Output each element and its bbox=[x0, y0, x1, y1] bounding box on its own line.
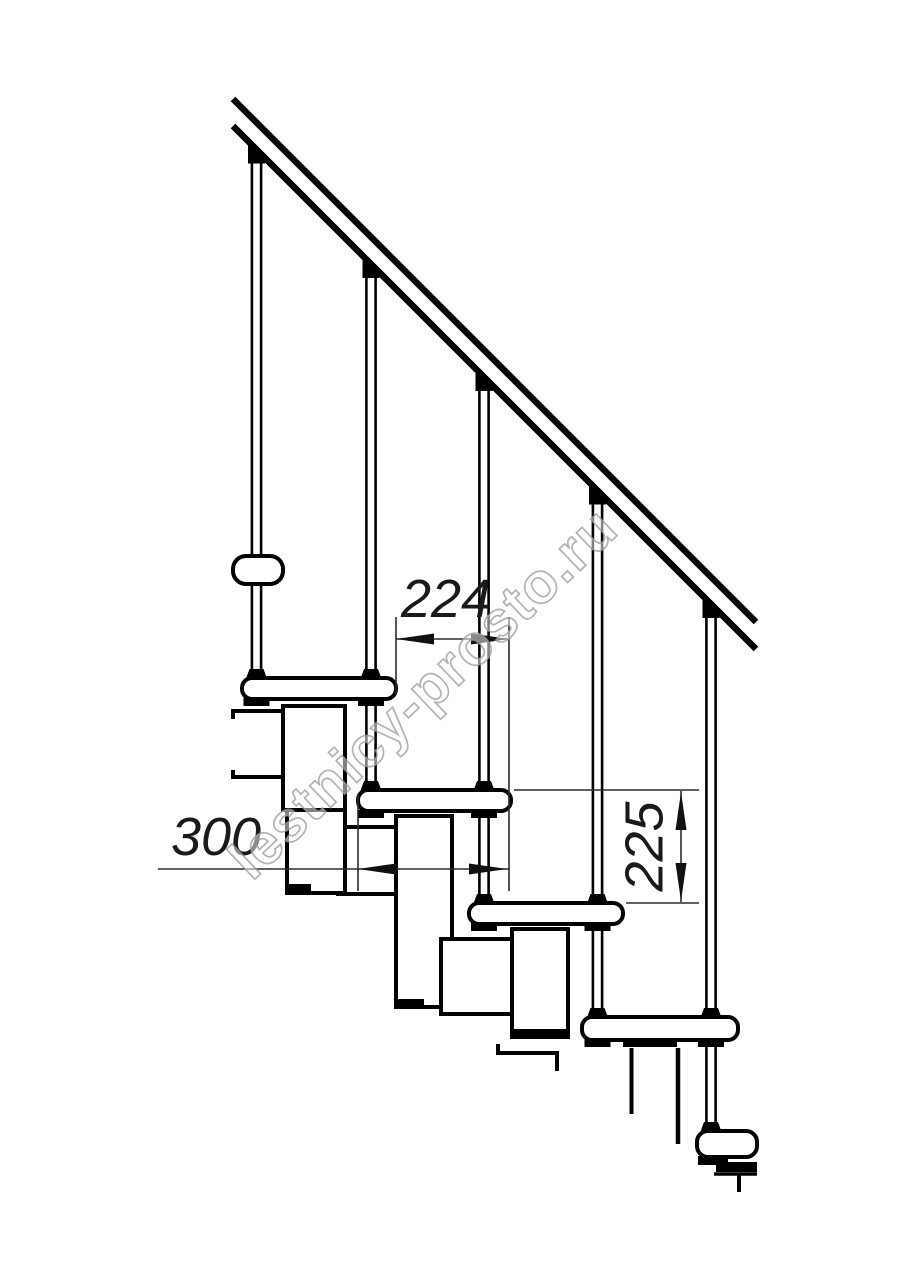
tread-5-partial bbox=[697, 1131, 757, 1157]
tread-3 bbox=[469, 903, 623, 924]
staircase-technical-drawing: 224 300 225 lestnicy-prosto.ru bbox=[0, 0, 914, 1280]
drawing-canvas: 224 300 225 lestnicy-prosto.ru bbox=[0, 0, 914, 1280]
module-connector-bar bbox=[716, 1162, 757, 1172]
module-column-3 bbox=[512, 929, 568, 1037]
module-joint-2 bbox=[441, 939, 515, 1014]
tread-4 bbox=[582, 1017, 738, 1040]
tread-2 bbox=[358, 790, 511, 811]
module-connector-bar bbox=[623, 1039, 677, 1047]
rail-end-bracket bbox=[233, 556, 283, 584]
dimension-value-225: 225 bbox=[615, 800, 675, 892]
